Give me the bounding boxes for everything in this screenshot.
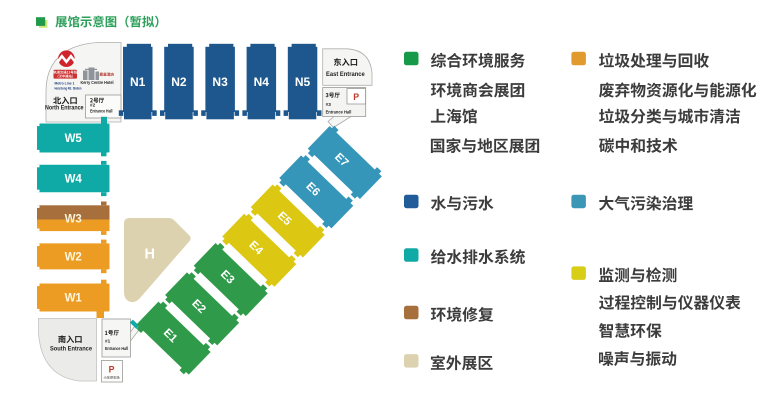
svg-text:#3: #3 — [326, 102, 332, 107]
svg-text:N5: N5 — [295, 75, 311, 89]
svg-text:P: P — [109, 365, 115, 375]
svg-text:North Entrance: North Entrance — [45, 105, 84, 112]
svg-text:#2: #2 — [90, 103, 96, 108]
svg-text:N3: N3 — [212, 75, 228, 89]
svg-text:H: H — [144, 246, 154, 262]
svg-text:Hanzhong Rd. Station: Hanzhong Rd. Station — [55, 85, 82, 90]
svg-text:W1: W1 — [65, 293, 83, 305]
svg-text:W3: W3 — [65, 213, 82, 225]
svg-text:W5: W5 — [65, 133, 83, 145]
svg-text:East Entrance: East Entrance — [326, 71, 365, 78]
svg-text:N4: N4 — [254, 75, 270, 89]
svg-text:Kerry Centre Hotel: Kerry Centre Hotel — [81, 80, 114, 85]
svg-text:P: P — [353, 92, 359, 102]
svg-text:N1: N1 — [130, 75, 146, 89]
svg-text:N2: N2 — [171, 75, 187, 89]
svg-text:#1: #1 — [105, 339, 111, 344]
svg-text:Entrance Hall: Entrance Hall — [105, 346, 128, 351]
svg-text:W2: W2 — [65, 252, 82, 264]
svg-text:Entrance Hall: Entrance Hall — [90, 109, 113, 114]
svg-text:South Entrance: South Entrance — [50, 345, 92, 352]
svg-text:W4: W4 — [65, 174, 83, 186]
svg-text:Entrance Hall: Entrance Hall — [326, 109, 352, 114]
